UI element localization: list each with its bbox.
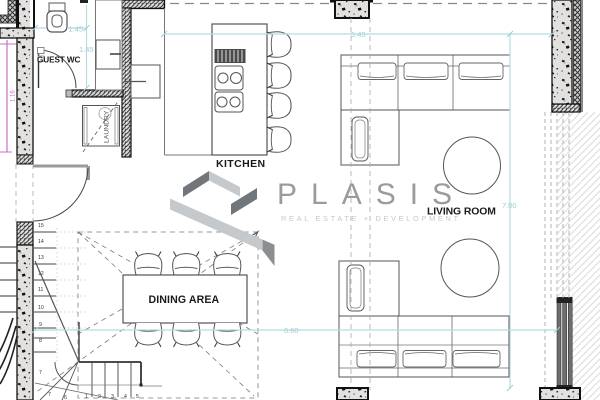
svg-text:13: 13 bbox=[38, 255, 44, 261]
svg-text:1: 1 bbox=[85, 394, 88, 400]
svg-text:5: 5 bbox=[136, 394, 139, 400]
svg-text:7: 7 bbox=[39, 370, 42, 376]
svg-text:7: 7 bbox=[48, 392, 51, 398]
svg-text:7.00: 7.00 bbox=[502, 201, 517, 210]
svg-text:GUEST WC: GUEST WC bbox=[37, 56, 81, 65]
svg-text:10: 10 bbox=[38, 305, 44, 311]
svg-text:3: 3 bbox=[111, 394, 114, 400]
svg-text:6.60: 6.60 bbox=[284, 326, 299, 335]
svg-text:1.45: 1.45 bbox=[79, 45, 94, 54]
svg-text:DINING AREA: DINING AREA bbox=[149, 294, 220, 306]
svg-text:9: 9 bbox=[39, 322, 42, 328]
svg-text:PLASIS: PLASIS bbox=[277, 178, 466, 211]
svg-text:REAL ESTATE + DEVELOPMENT: REAL ESTATE + DEVELOPMENT bbox=[281, 214, 461, 223]
svg-text:14: 14 bbox=[38, 239, 44, 245]
svg-text:1.45: 1.45 bbox=[69, 25, 84, 34]
svg-text:5.45: 5.45 bbox=[351, 30, 366, 39]
svg-text:4: 4 bbox=[124, 394, 127, 400]
svg-text:1.16: 1.16 bbox=[11, 90, 17, 102]
svg-text:2: 2 bbox=[98, 394, 101, 400]
svg-text:6: 6 bbox=[64, 395, 67, 400]
svg-text:11: 11 bbox=[38, 287, 43, 293]
svg-text:KITCHEN: KITCHEN bbox=[216, 158, 265, 170]
svg-text:LAUNDRY: LAUNDRY bbox=[104, 110, 111, 143]
svg-text:8: 8 bbox=[39, 338, 42, 344]
svg-text:15: 15 bbox=[38, 223, 44, 229]
